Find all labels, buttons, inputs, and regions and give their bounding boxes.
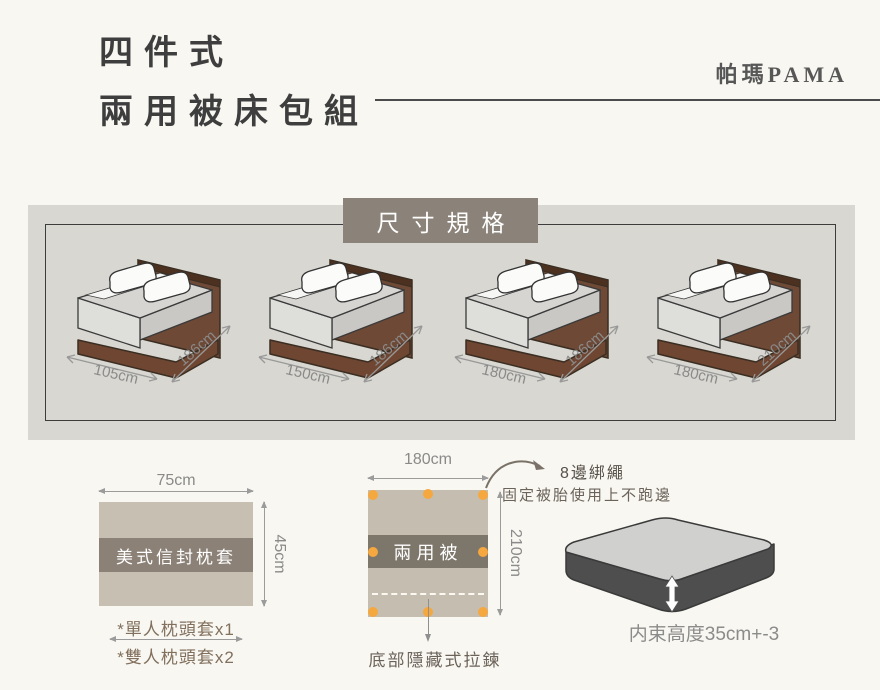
quilt-height-label: 210cm bbox=[506, 529, 524, 577]
tie-note-sub: 固定被胎使用上不跑邊 bbox=[502, 484, 672, 505]
pillow-note-arrow bbox=[110, 639, 242, 640]
pillow-note-single: *單人枕頭套x1 bbox=[99, 615, 253, 640]
pillowcase-diagram: 美式信封枕套 bbox=[99, 502, 253, 606]
pillow-width-arrow bbox=[99, 491, 253, 492]
pillow-width-label: 75cm bbox=[99, 472, 253, 490]
bed-size-3: 180cm 186cm bbox=[448, 254, 628, 404]
quilt-width-label: 180cm bbox=[368, 451, 488, 469]
bed-size-2: 150cm 186cm bbox=[252, 254, 432, 404]
tie-dot bbox=[423, 489, 433, 499]
mattress-illustration bbox=[556, 514, 786, 622]
page-title-line1: 四件式 bbox=[99, 24, 369, 83]
quilt-label-band: 兩用被 bbox=[368, 535, 488, 568]
tie-dot bbox=[368, 607, 378, 617]
quilt-zipper-dashed-line bbox=[372, 593, 484, 595]
quilt-height-arrow bbox=[500, 492, 501, 615]
tie-note-title: 8邊綁繩 bbox=[560, 459, 625, 483]
product-spec-page: 四件式 兩用被床包組 帕瑪PAMA 尺寸規格 105cm 186cm bbox=[0, 0, 880, 690]
brand-name: 帕瑪PAMA bbox=[716, 57, 848, 89]
pillow-note-double: *雙人枕頭套x2 bbox=[99, 643, 253, 668]
quilt-diagram: 兩用被 bbox=[368, 490, 488, 617]
tie-dot bbox=[368, 547, 378, 557]
pillowcase-label-band: 美式信封枕套 bbox=[99, 538, 253, 572]
tie-dot bbox=[478, 607, 488, 617]
pillowcase-label: 美式信封枕套 bbox=[116, 543, 236, 568]
quilt-label: 兩用被 bbox=[394, 539, 463, 565]
page-title-line2: 兩用被床包組 bbox=[99, 83, 369, 142]
size-spec-badge-label: 尺寸規格 bbox=[377, 204, 517, 238]
quilt-width-arrow bbox=[368, 478, 488, 479]
pillow-height-label: 45cm bbox=[270, 534, 288, 573]
bed-size-4: 180cm 210cm bbox=[640, 254, 820, 404]
pillow-height-arrow bbox=[264, 502, 265, 606]
size-spec-badge: 尺寸規格 bbox=[343, 198, 538, 243]
page-title: 四件式 兩用被床包組 bbox=[99, 24, 369, 142]
tie-dot bbox=[368, 490, 378, 500]
zipper-pointer-arrow bbox=[428, 599, 429, 635]
mattress-height-note: 内束高度35cm+-3 bbox=[599, 619, 809, 646]
zipper-note: 底部隱藏式拉鍊 bbox=[360, 646, 510, 671]
header-divider bbox=[375, 99, 880, 101]
bed-size-1: 105cm 186cm bbox=[60, 254, 240, 404]
tie-dot bbox=[478, 547, 488, 557]
